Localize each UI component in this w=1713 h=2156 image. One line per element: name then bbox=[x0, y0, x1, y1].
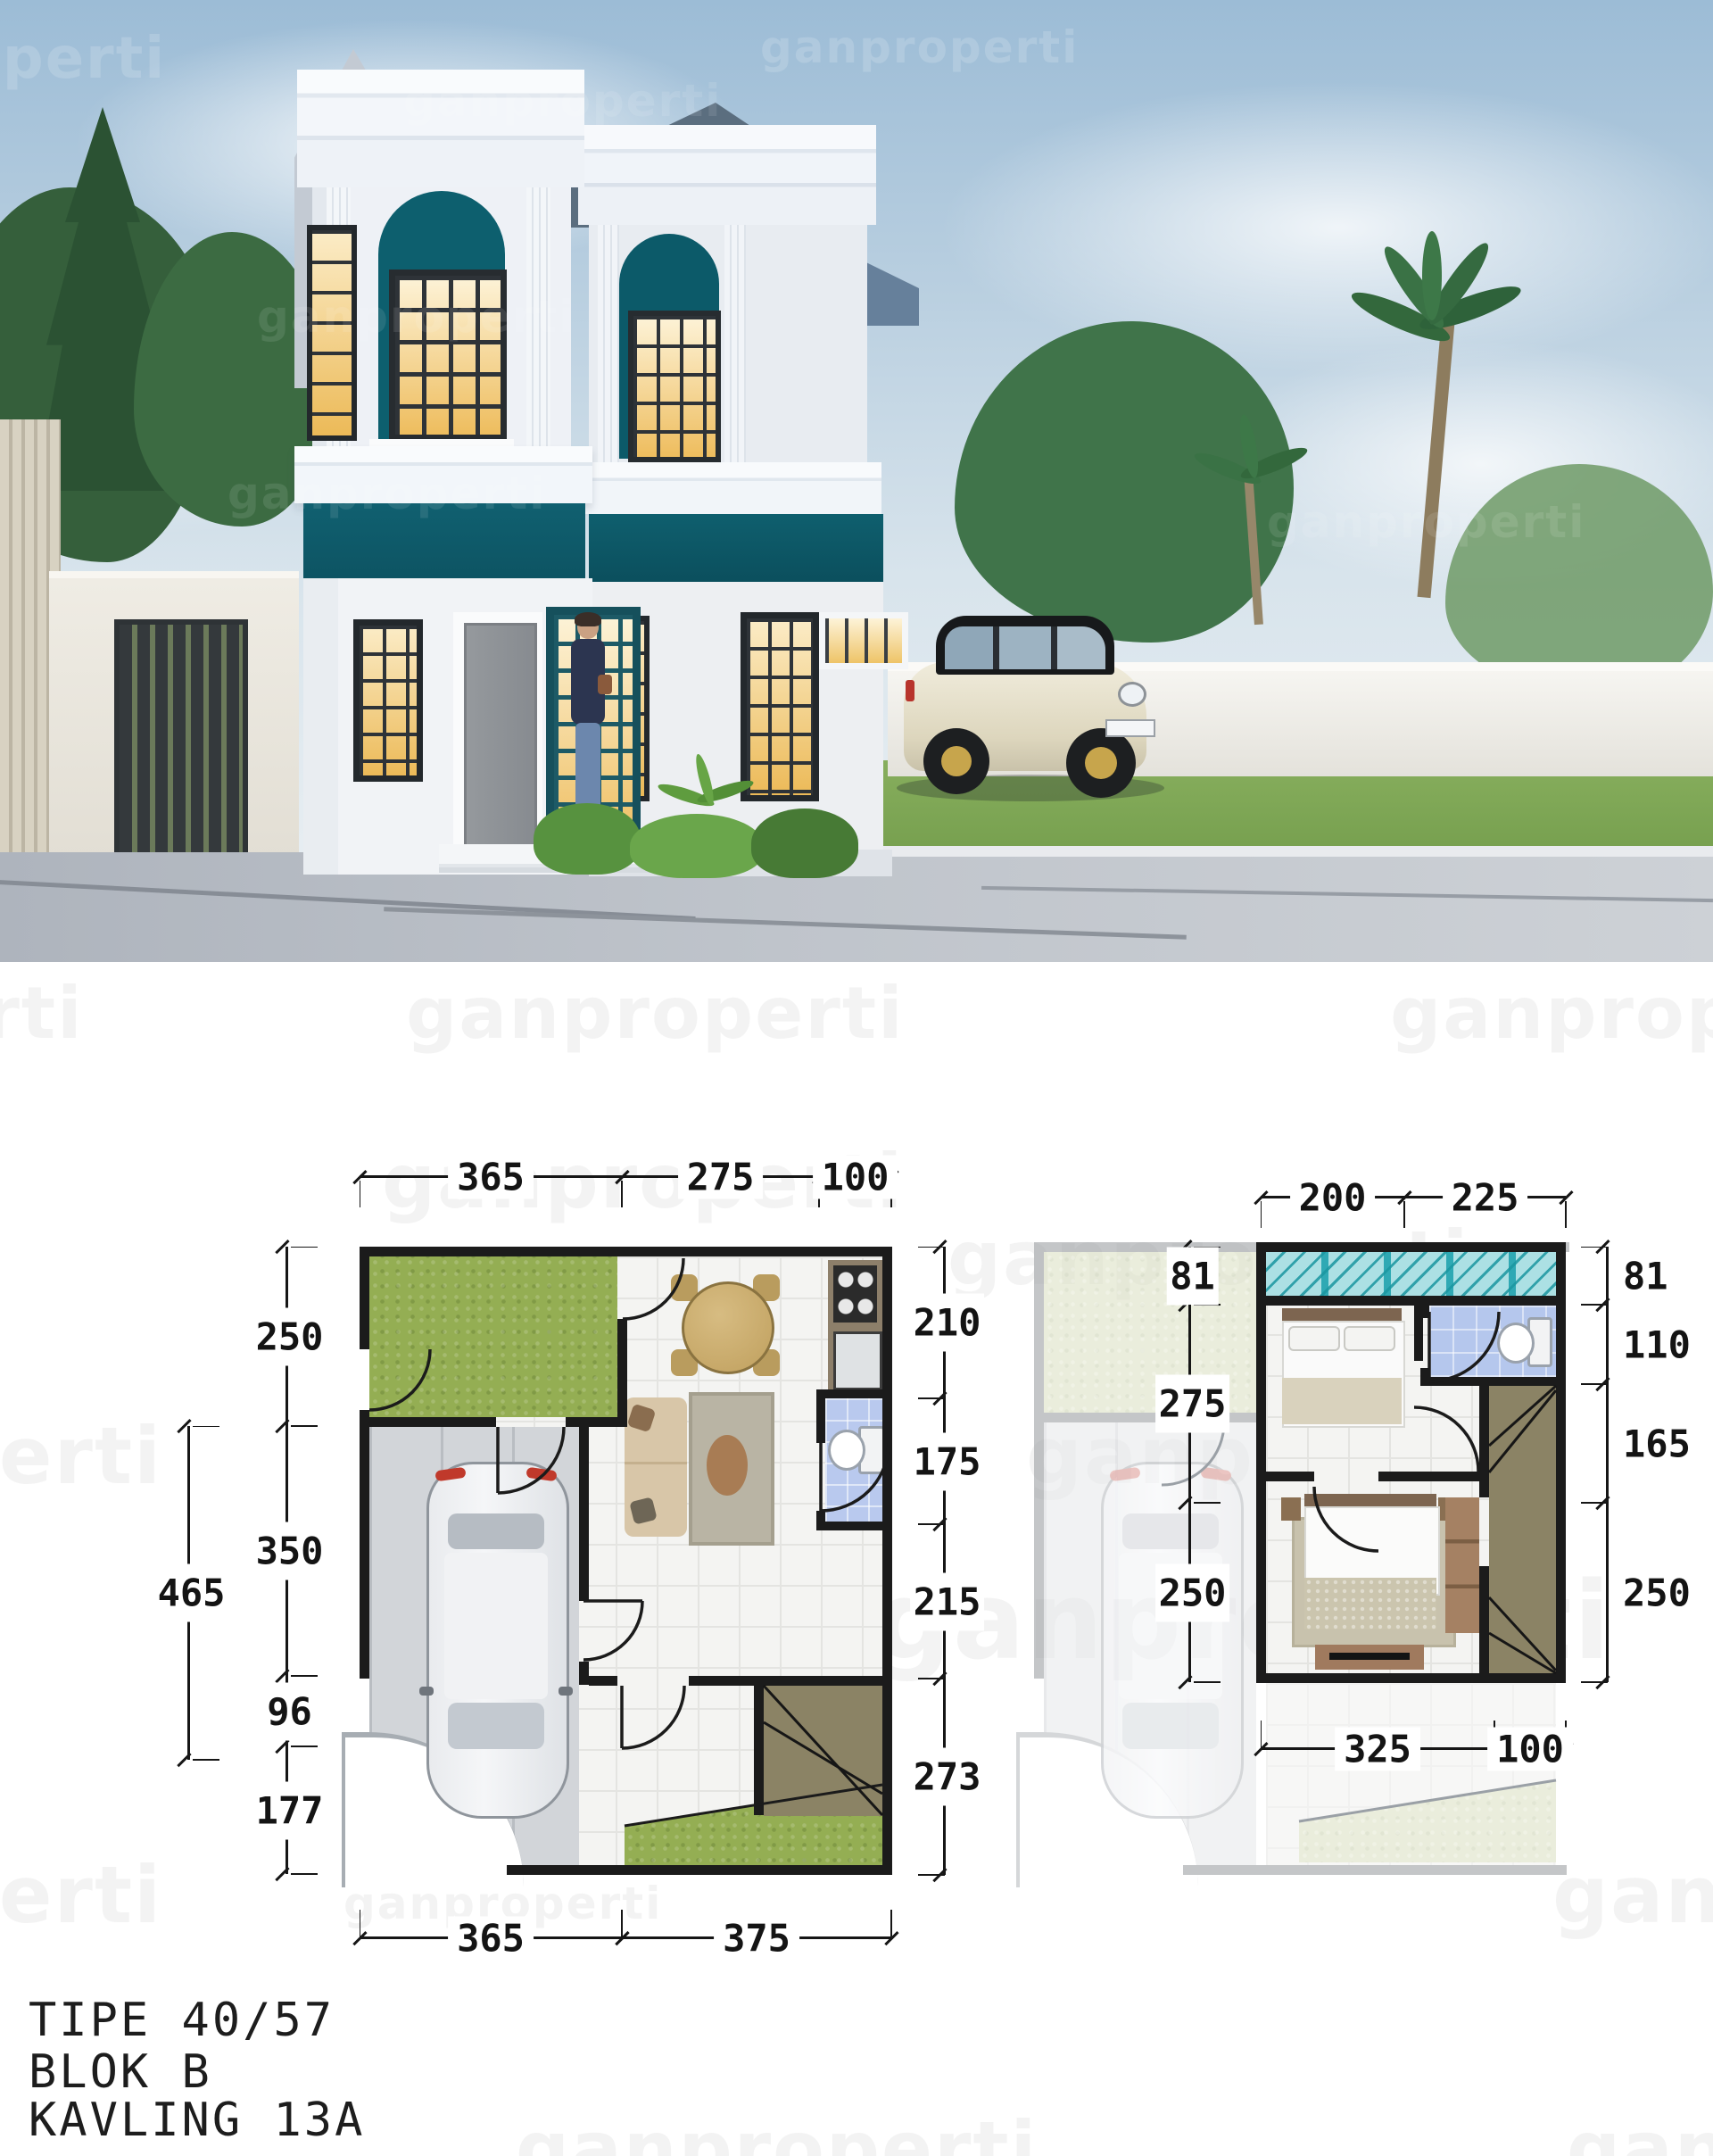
bed2-headboard bbox=[1304, 1494, 1436, 1506]
watermark: ganproperti bbox=[406, 978, 905, 1049]
bed1-headboard bbox=[1282, 1308, 1402, 1321]
dim-left-top-3: 100 bbox=[819, 1175, 891, 1178]
shrub bbox=[751, 808, 858, 878]
person-bag bbox=[598, 675, 612, 694]
ghost-car-windshield bbox=[1122, 1703, 1219, 1749]
ext bbox=[1565, 1201, 1567, 1228]
dim-label: 81 bbox=[1166, 1247, 1219, 1305]
bed2-nightstand bbox=[1281, 1497, 1301, 1521]
car-mirror bbox=[419, 1687, 434, 1696]
unit1-teal-band bbox=[303, 503, 585, 578]
wall bbox=[1414, 1306, 1423, 1361]
unit1-arch-window bbox=[378, 191, 505, 439]
dim-label: 225 bbox=[1443, 1175, 1528, 1219]
wall bbox=[1556, 1242, 1566, 1683]
ext bbox=[193, 1426, 219, 1428]
dim-label: 325 bbox=[1335, 1727, 1420, 1770]
ghost-wall bbox=[1183, 1865, 1567, 1875]
coffee-table bbox=[707, 1435, 748, 1496]
upper-stairs bbox=[1489, 1386, 1556, 1673]
bed1-blanket bbox=[1282, 1378, 1402, 1424]
dim-left-side-3: 96 bbox=[285, 1676, 288, 1746]
wall bbox=[816, 1389, 825, 1443]
stove bbox=[833, 1265, 877, 1323]
watermark: ganproperti bbox=[0, 978, 84, 1049]
dim-label: 365 bbox=[448, 1155, 534, 1198]
unit2-teal-band bbox=[589, 514, 883, 582]
dim-label: 110 bbox=[1623, 1323, 1691, 1366]
wardrobe bbox=[1445, 1497, 1479, 1633]
ext bbox=[918, 1397, 945, 1399]
dim-label: 273 bbox=[910, 1748, 985, 1806]
ext bbox=[193, 1759, 219, 1761]
tick bbox=[177, 1753, 191, 1767]
ext bbox=[621, 1910, 623, 1936]
bed1-pillow bbox=[1288, 1326, 1340, 1351]
ext bbox=[918, 1874, 945, 1876]
watermark: ganproperti bbox=[516, 2111, 1038, 2156]
tick bbox=[177, 1419, 191, 1433]
ext bbox=[1581, 1304, 1608, 1306]
dim-left-side-2: 350 bbox=[285, 1426, 288, 1676]
dim-label: 165 bbox=[1623, 1422, 1691, 1465]
kitchen-sink bbox=[833, 1331, 882, 1390]
car-windows bbox=[945, 626, 1105, 669]
dim-right-left-3: 250 bbox=[1188, 1503, 1191, 1682]
ghost-wall bbox=[1034, 1242, 1044, 1679]
wall bbox=[1256, 1296, 1566, 1306]
watermark: ganproperti bbox=[0, 1856, 162, 1935]
ext bbox=[291, 1873, 318, 1875]
caption-kavling: KAVLING 13A bbox=[29, 2097, 365, 2144]
wall bbox=[1479, 1386, 1489, 1497]
ext bbox=[360, 1181, 361, 1207]
exterior-render-photo: ganproperti ganproperti ganproperti ganp… bbox=[0, 0, 1713, 962]
car-rear-window bbox=[448, 1513, 544, 1549]
wall bbox=[360, 1247, 892, 1256]
ext bbox=[621, 1181, 623, 1207]
dim-left-bottom-1: 365 bbox=[360, 1936, 622, 1939]
tick bbox=[275, 1867, 289, 1881]
unit2-high-window bbox=[819, 612, 908, 669]
wall bbox=[816, 1522, 882, 1530]
ext bbox=[291, 1675, 318, 1677]
watermark: ganproperti bbox=[1390, 978, 1713, 1049]
car-plate bbox=[1105, 719, 1155, 737]
ext bbox=[1261, 1721, 1262, 1747]
dim-label: 275 bbox=[678, 1155, 764, 1198]
wall bbox=[1479, 1566, 1489, 1673]
unit2-cornice bbox=[578, 125, 876, 225]
dim-left-right-4: 273 bbox=[943, 1679, 946, 1875]
wall bbox=[579, 1427, 589, 1601]
ext bbox=[291, 1746, 318, 1747]
ext bbox=[1581, 1681, 1608, 1683]
ext bbox=[1194, 1681, 1221, 1683]
tick bbox=[275, 1240, 289, 1254]
car-topview bbox=[426, 1462, 569, 1819]
dim-right-right-3: 165 bbox=[1606, 1384, 1609, 1503]
dim-right-right-1: 81 bbox=[1606, 1247, 1609, 1305]
unit2-pilaster bbox=[598, 225, 619, 468]
wall bbox=[507, 1865, 892, 1875]
car-hubcap bbox=[941, 746, 972, 776]
dim-label: 210 bbox=[910, 1294, 985, 1352]
wall bbox=[1420, 1377, 1566, 1386]
wall bbox=[689, 1676, 882, 1686]
unit1-ground-window bbox=[353, 619, 423, 782]
bed1-pillow bbox=[1344, 1326, 1395, 1351]
car-hubcap bbox=[1085, 747, 1117, 779]
dim-label: 250 bbox=[1623, 1571, 1691, 1614]
dim-label: 100 bbox=[813, 1155, 898, 1198]
upper-toilet-bowl bbox=[1497, 1323, 1535, 1364]
wall bbox=[360, 1417, 496, 1427]
dim-label: 375 bbox=[714, 1916, 799, 1960]
ext bbox=[1194, 1502, 1221, 1504]
dim-label: 275 bbox=[1155, 1375, 1230, 1433]
dim-left-right-1: 210 bbox=[943, 1247, 946, 1398]
dim-right-top-2: 225 bbox=[1404, 1196, 1566, 1198]
ext bbox=[360, 1910, 361, 1936]
wall bbox=[1256, 1242, 1266, 1683]
unit1-side-window bbox=[307, 225, 357, 441]
ext bbox=[918, 1678, 945, 1679]
dim-label: 175 bbox=[910, 1432, 985, 1490]
ghost-car-rear-window bbox=[1122, 1513, 1219, 1549]
ext bbox=[1403, 1201, 1405, 1228]
ghost-wall bbox=[1034, 1413, 1160, 1422]
ext bbox=[1581, 1502, 1608, 1504]
car-taillight bbox=[906, 680, 914, 701]
dim-label: 350 bbox=[252, 1522, 327, 1580]
ext bbox=[918, 1247, 945, 1248]
toilet-bowl bbox=[828, 1430, 865, 1471]
shrub bbox=[630, 814, 764, 878]
ext bbox=[1261, 1201, 1262, 1228]
unit2-pilaster bbox=[724, 225, 746, 468]
unit1-mid-cornice bbox=[294, 446, 592, 503]
dim-right-left-2: 275 bbox=[1188, 1305, 1191, 1503]
car-roof-top bbox=[444, 1553, 548, 1699]
wall bbox=[1256, 1472, 1314, 1481]
window-glass bbox=[389, 269, 507, 441]
dim-left-top-2: 275 bbox=[622, 1175, 819, 1178]
front-door bbox=[464, 623, 537, 853]
ghost-car-topview bbox=[1101, 1462, 1244, 1819]
dim-right-top-1: 200 bbox=[1261, 1196, 1404, 1198]
dim-left-outer: 465 bbox=[187, 1426, 190, 1760]
caption-type: TIPE 40/57 bbox=[29, 1997, 335, 2044]
ext bbox=[291, 1425, 318, 1427]
dim-left-top-1: 365 bbox=[360, 1175, 622, 1178]
window-glass bbox=[628, 311, 721, 462]
dining-table bbox=[682, 1281, 774, 1374]
car-windshield-top bbox=[448, 1703, 544, 1749]
dim-label: 250 bbox=[252, 1307, 327, 1365]
watermark: ganproperti bbox=[1552, 1856, 1713, 1935]
dim-label: 200 bbox=[1290, 1175, 1376, 1219]
car-headlight bbox=[1118, 682, 1146, 707]
ext bbox=[1581, 1383, 1608, 1385]
bed2-blanket bbox=[1304, 1578, 1436, 1629]
ext bbox=[1581, 1247, 1608, 1248]
ext bbox=[291, 1247, 318, 1248]
shrub bbox=[534, 803, 641, 875]
dim-label: 215 bbox=[910, 1572, 985, 1630]
dim-label: 365 bbox=[448, 1916, 534, 1960]
dim-right-right-4: 250 bbox=[1606, 1503, 1609, 1682]
wall bbox=[617, 1319, 627, 1427]
unit2-arch-window bbox=[619, 234, 719, 459]
wall bbox=[754, 1686, 764, 1815]
wall bbox=[816, 1389, 882, 1398]
dim-left-right-2: 175 bbox=[943, 1398, 946, 1524]
unit2-mid-cornice bbox=[582, 462, 881, 514]
dim-left-bottom-2: 375 bbox=[622, 1936, 891, 1939]
wall bbox=[589, 1676, 617, 1686]
watermark: ganproperti bbox=[0, 1417, 162, 1496]
dim-right-right-2: 110 bbox=[1606, 1305, 1609, 1384]
person-hair bbox=[575, 612, 601, 626]
dim-left-side-4: 177 bbox=[285, 1746, 288, 1874]
wall bbox=[1256, 1242, 1566, 1252]
car bbox=[897, 607, 1164, 812]
dim-label: 250 bbox=[1155, 1563, 1230, 1621]
unit1-pilaster bbox=[526, 187, 550, 453]
dim-right-bottom-2: 100 bbox=[1494, 1747, 1566, 1750]
wall bbox=[1256, 1673, 1566, 1683]
ext bbox=[918, 1523, 945, 1525]
plant-palm-accent bbox=[657, 769, 755, 823]
dim-left-right-3: 215 bbox=[943, 1524, 946, 1679]
dim-right-bottom-1: 325 bbox=[1261, 1747, 1494, 1750]
dim-left-side-1: 250 bbox=[285, 1247, 288, 1426]
dim-right-left-1: 81 bbox=[1188, 1247, 1191, 1305]
front-garden bbox=[369, 1256, 617, 1417]
unit1-cornice bbox=[297, 70, 584, 187]
house bbox=[0, 0, 1713, 962]
property-flyer: ganproperti ganproperti ganproperti ganp… bbox=[0, 0, 1713, 2156]
stairs bbox=[764, 1686, 882, 1816]
watermark: ganproperti bbox=[1567, 2111, 1713, 2156]
roof-void-strip bbox=[1266, 1252, 1556, 1296]
wall bbox=[882, 1247, 892, 1875]
wall bbox=[579, 1662, 589, 1685]
ext bbox=[890, 1910, 892, 1936]
dim-label: 96 bbox=[263, 1682, 316, 1740]
caption-block: BLOK B bbox=[29, 2049, 212, 2095]
tv bbox=[1329, 1653, 1410, 1660]
dim-label: 465 bbox=[154, 1564, 229, 1622]
wall bbox=[566, 1417, 627, 1427]
dim-label: 177 bbox=[252, 1781, 327, 1839]
wall bbox=[1378, 1472, 1479, 1481]
dim-label: 81 bbox=[1623, 1254, 1668, 1298]
dim-label: 100 bbox=[1487, 1727, 1573, 1770]
wall bbox=[360, 1247, 369, 1349]
car-mirror bbox=[559, 1687, 573, 1696]
wall bbox=[360, 1410, 369, 1679]
